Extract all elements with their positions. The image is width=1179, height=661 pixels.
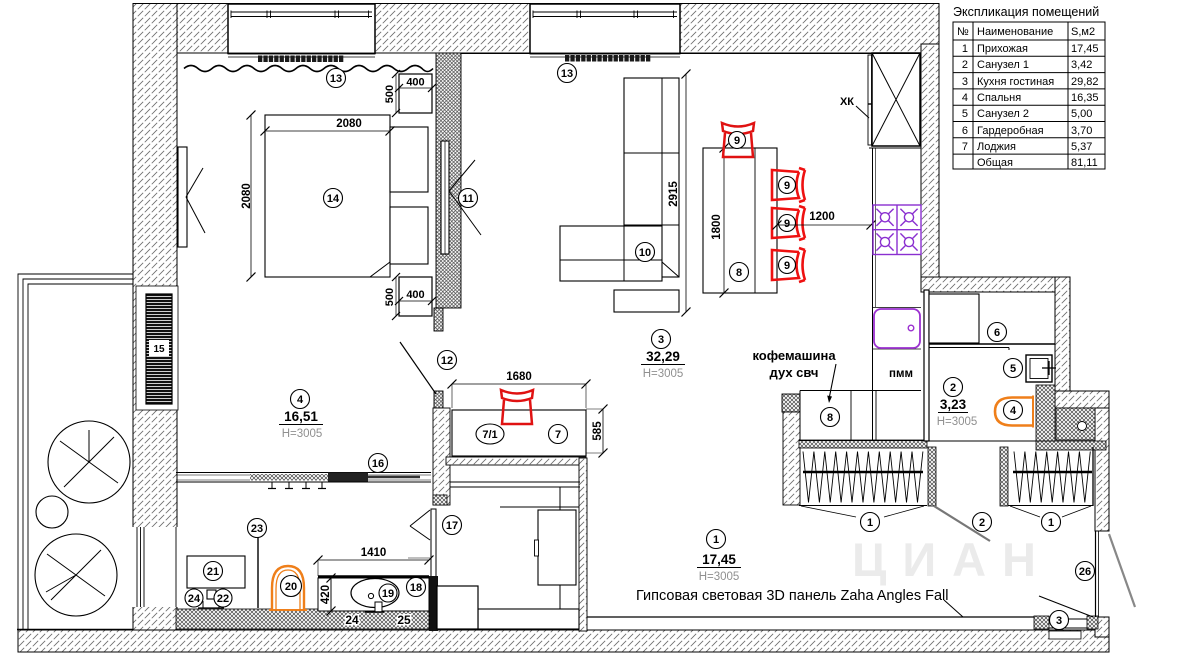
svg-text:Кухня гостиная: Кухня гостиная xyxy=(977,76,1054,88)
svg-text:4: 4 xyxy=(962,92,968,104)
svg-text:585: 585 xyxy=(592,421,604,441)
svg-text:H=3005: H=3005 xyxy=(282,428,323,440)
svg-text:20: 20 xyxy=(285,581,297,593)
svg-text:500: 500 xyxy=(384,85,396,103)
svg-text:16,51: 16,51 xyxy=(284,409,318,424)
svg-text:1800: 1800 xyxy=(711,214,723,240)
svg-text:2: 2 xyxy=(962,59,968,71)
svg-text:1: 1 xyxy=(713,534,719,546)
svg-text:7/1: 7/1 xyxy=(482,429,497,441)
svg-text:Лоджия: Лоджия xyxy=(977,141,1016,153)
svg-text:24: 24 xyxy=(345,613,359,627)
svg-text:21: 21 xyxy=(207,566,219,578)
svg-text:8: 8 xyxy=(827,412,833,424)
svg-text:19: 19 xyxy=(382,588,394,600)
svg-text:22: 22 xyxy=(217,593,229,605)
svg-text:Наименование: Наименование xyxy=(977,26,1053,38)
svg-text:9: 9 xyxy=(784,260,790,272)
svg-text:5,37: 5,37 xyxy=(1071,141,1092,153)
svg-text:1: 1 xyxy=(962,43,968,55)
svg-text:17: 17 xyxy=(446,520,458,532)
svg-text:2080: 2080 xyxy=(336,118,362,130)
svg-text:3: 3 xyxy=(658,334,664,346)
svg-text:пмм: пмм xyxy=(889,368,913,380)
svg-text:2915: 2915 xyxy=(668,181,680,207)
svg-text:H=3005: H=3005 xyxy=(699,571,740,583)
svg-text:8: 8 xyxy=(736,267,742,279)
svg-text:5: 5 xyxy=(962,108,968,120)
svg-text:10: 10 xyxy=(639,247,651,259)
svg-text:400: 400 xyxy=(406,77,424,89)
svg-text:29,82: 29,82 xyxy=(1071,76,1099,88)
svg-text:дух свч: дух свч xyxy=(770,365,819,380)
svg-text:9: 9 xyxy=(784,218,790,230)
svg-text:9: 9 xyxy=(784,180,790,192)
svg-text:H=3005: H=3005 xyxy=(937,416,978,428)
svg-text:кофемашина: кофемашина xyxy=(752,348,836,363)
svg-text:Гардеробная: Гардеробная xyxy=(977,125,1044,137)
svg-text:17,45: 17,45 xyxy=(1071,43,1099,55)
svg-text:12: 12 xyxy=(441,355,453,367)
svg-text:Спальня: Спальня xyxy=(977,92,1021,104)
svg-text:13: 13 xyxy=(330,73,342,85)
svg-text:4: 4 xyxy=(297,394,304,406)
svg-text:5,00: 5,00 xyxy=(1071,108,1092,120)
svg-text:7: 7 xyxy=(555,429,561,441)
svg-text:1200: 1200 xyxy=(809,211,835,223)
svg-text:16: 16 xyxy=(372,458,384,470)
svg-text:5: 5 xyxy=(1010,363,1016,375)
svg-text:13: 13 xyxy=(561,68,573,80)
svg-text:2: 2 xyxy=(979,517,985,529)
svg-text:1680: 1680 xyxy=(506,371,532,383)
svg-text:25: 25 xyxy=(397,613,411,627)
svg-text:15: 15 xyxy=(153,344,165,355)
svg-text:Экспликация помещений: Экспликация помещений xyxy=(953,5,1099,19)
svg-text:2080: 2080 xyxy=(241,183,253,209)
svg-text:3,23: 3,23 xyxy=(940,397,967,412)
svg-text:81,11: 81,11 xyxy=(1071,157,1098,169)
svg-text:32,29: 32,29 xyxy=(646,349,680,364)
svg-text:Прихожая: Прихожая xyxy=(977,43,1028,55)
svg-text:500: 500 xyxy=(384,288,396,306)
svg-text:Общая: Общая xyxy=(977,157,1013,169)
svg-text:14: 14 xyxy=(327,193,340,205)
svg-text:4: 4 xyxy=(1010,405,1017,417)
svg-text:ЦИАН: ЦИАН xyxy=(852,533,1052,586)
svg-text:3,70: 3,70 xyxy=(1071,125,1092,137)
svg-text:400: 400 xyxy=(406,289,424,301)
svg-text:2: 2 xyxy=(950,382,956,394)
svg-text:17,45: 17,45 xyxy=(702,552,736,567)
svg-text:16,35: 16,35 xyxy=(1071,92,1099,104)
svg-text:11: 11 xyxy=(462,193,474,205)
svg-text:3,42: 3,42 xyxy=(1071,59,1092,71)
svg-text:3: 3 xyxy=(1056,615,1062,627)
svg-text:3: 3 xyxy=(962,76,968,88)
svg-text:6: 6 xyxy=(994,327,1000,339)
svg-text:420: 420 xyxy=(320,585,332,604)
svg-text:1410: 1410 xyxy=(361,547,387,559)
svg-text:1: 1 xyxy=(1048,517,1054,529)
svg-text:H=3005: H=3005 xyxy=(643,368,684,380)
svg-text:ХК: ХК xyxy=(840,96,854,108)
svg-text:Гипсовая световая 3D панель Za: Гипсовая световая 3D панель Zaha Angles … xyxy=(636,588,948,604)
svg-text:9: 9 xyxy=(734,135,740,147)
svg-text:24: 24 xyxy=(188,593,201,605)
svg-text:26: 26 xyxy=(1079,566,1091,578)
svg-text:1: 1 xyxy=(867,517,873,529)
svg-text:Санузел 2: Санузел 2 xyxy=(977,108,1029,120)
svg-text:7: 7 xyxy=(962,141,968,153)
svg-text:18: 18 xyxy=(410,582,422,594)
svg-text:6: 6 xyxy=(962,125,968,137)
svg-text:№: № xyxy=(957,26,969,38)
svg-text:Санузел 1: Санузел 1 xyxy=(977,59,1029,71)
svg-text:23: 23 xyxy=(251,523,263,535)
svg-text:S,м2: S,м2 xyxy=(1071,26,1095,38)
